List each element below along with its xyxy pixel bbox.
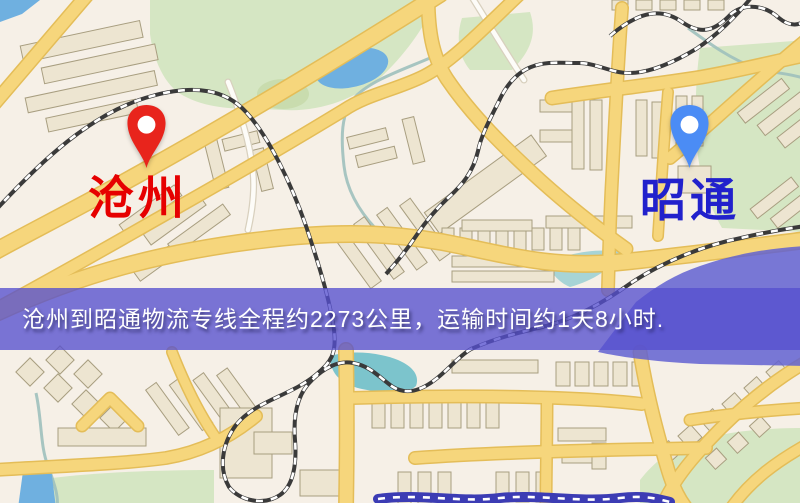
route-info-text: 沧州到昭通物流专线全程约2273公里，运输时间约1天8小时.: [22, 306, 664, 332]
origin-city-label: 沧州: [88, 176, 188, 222]
route-info-banner: 沧州到昭通物流专线全程约2273公里，运输时间约1天8小时.: [0, 288, 800, 350]
map-canvas[interactable]: 沧州到昭通物流专线全程约2273公里，运输时间约1天8小时. 沧州 昭通: [0, 0, 800, 503]
destination-city-label: 昭通: [640, 178, 740, 224]
destination-pin-icon[interactable]: [666, 102, 713, 170]
basemap: [0, 0, 800, 503]
bottom-dark-strip: [378, 497, 670, 502]
origin-pin-icon[interactable]: [123, 102, 170, 170]
